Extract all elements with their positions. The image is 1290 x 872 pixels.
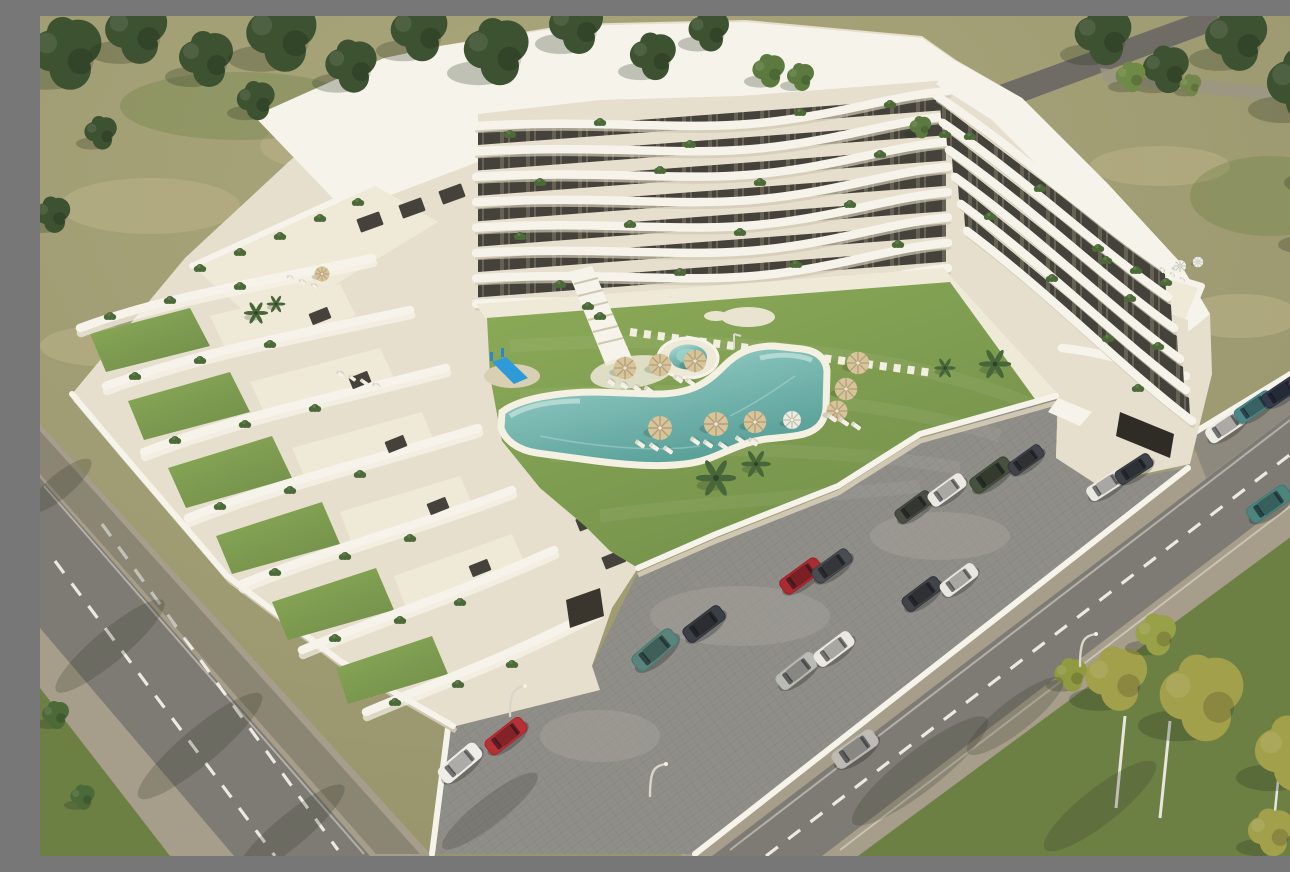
architectural-render: Aerial 3D architectural rendering of a w… (40, 16, 1290, 856)
render-canvas (40, 16, 1290, 856)
lawn-circle-large (721, 307, 775, 327)
